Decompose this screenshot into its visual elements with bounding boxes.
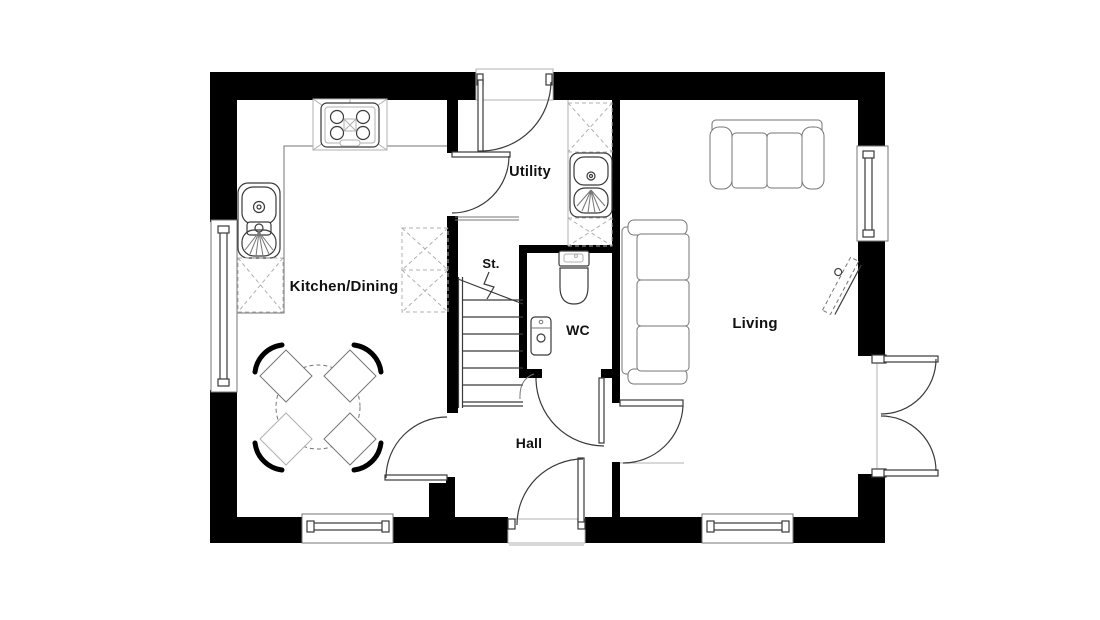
room-label-utility: Utility (509, 164, 551, 180)
kitchen-sink (238, 183, 280, 258)
utility-sink (570, 153, 612, 217)
door-kitchen-to-hall (385, 417, 447, 480)
floor-plan: Kitchen/Dining Utility St. WC Hall Livin… (0, 0, 1100, 620)
room-label-store: St. (482, 256, 499, 271)
window-living-right (857, 146, 888, 241)
door-kitchen-to-utility (452, 152, 510, 213)
basin (531, 317, 551, 355)
sofa-three-seater (622, 220, 689, 384)
door-hall-to-wc (536, 378, 604, 446)
room-label-kitchen-dining: Kitchen/Dining (290, 278, 399, 295)
room-label-wc: WC (566, 322, 590, 338)
window-living-bottom (702, 514, 793, 543)
door-hall-to-living (620, 400, 684, 463)
tv-unit (816, 254, 862, 317)
room-label-living: Living (732, 315, 777, 332)
window-kitchen-bottom (302, 514, 393, 543)
tall-unit (402, 228, 448, 312)
toilet (559, 251, 589, 304)
french-doors (872, 355, 938, 477)
window-kitchen-left (211, 220, 237, 392)
hob-extractor (313, 99, 387, 150)
room-label-hall: Hall (516, 435, 542, 451)
sofa-two-seater (710, 120, 824, 189)
floor-plan-drawing (0, 0, 1100, 620)
back-door (476, 69, 553, 151)
dining-chairs (255, 345, 381, 470)
dishwasher (238, 258, 283, 312)
front-door (508, 458, 585, 545)
